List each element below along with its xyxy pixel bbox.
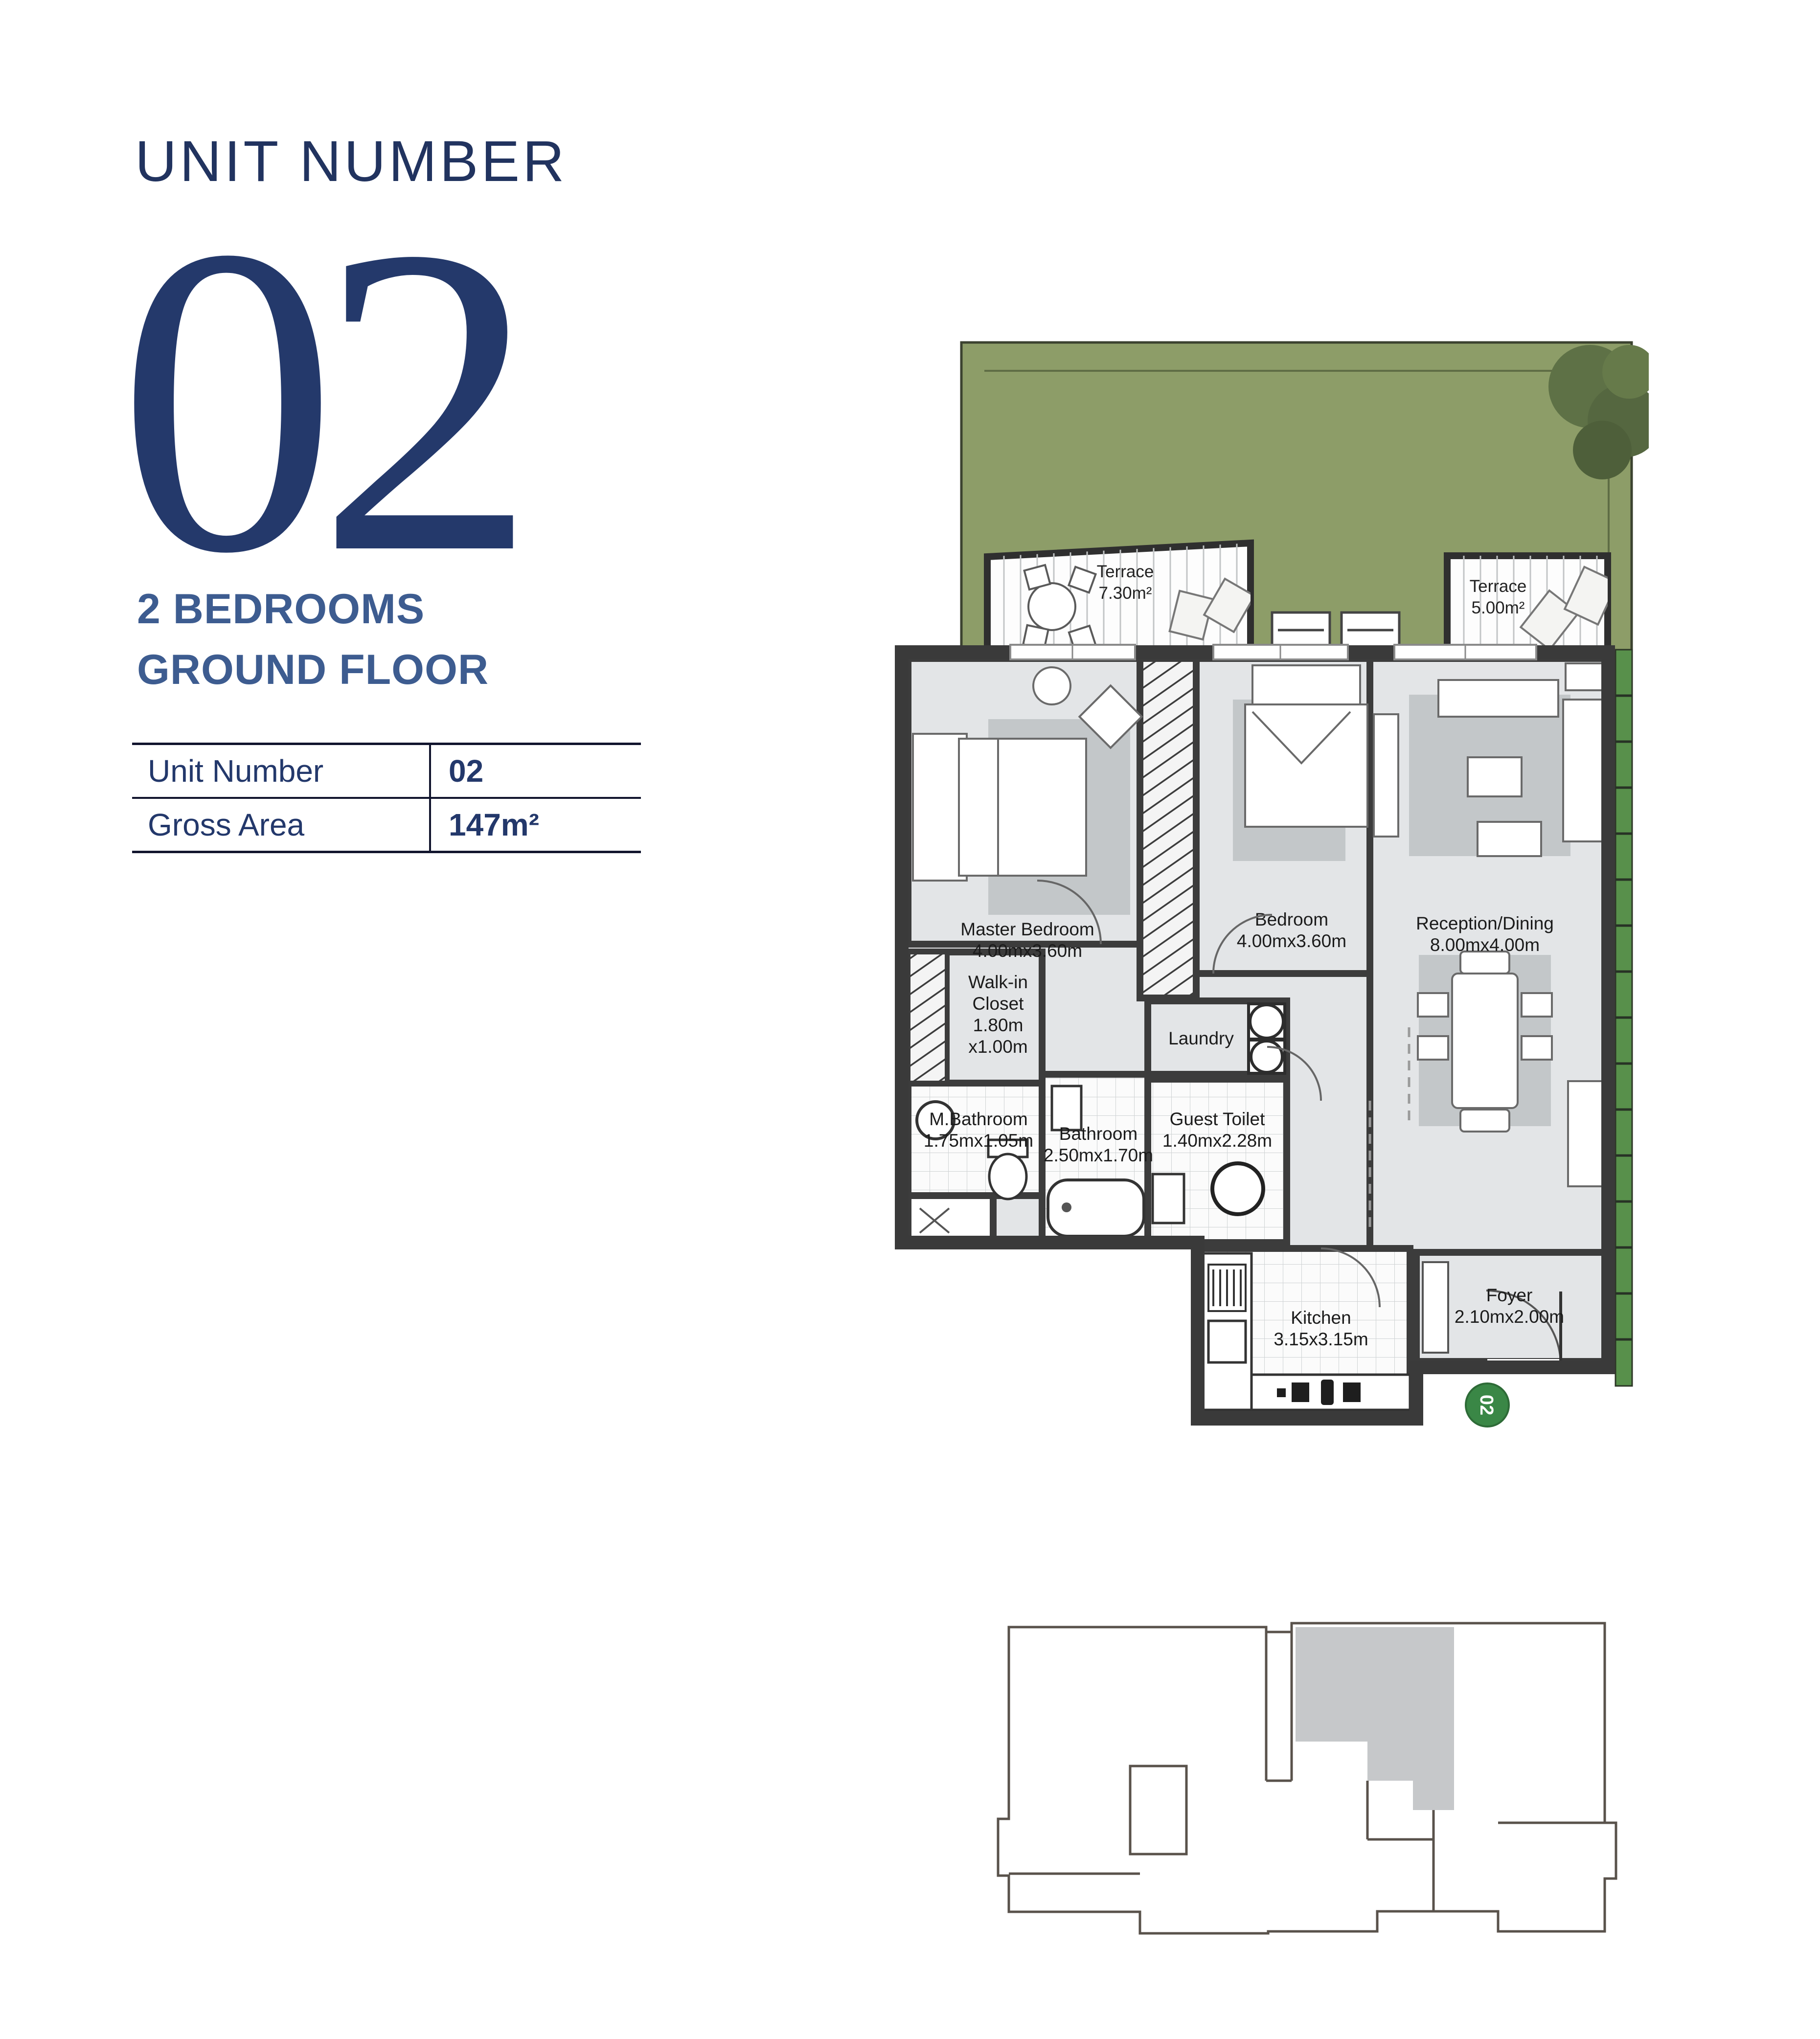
terrace-left-area: 7.30m² bbox=[1099, 584, 1152, 603]
master-bedroom-dims: 4.00mx3.60m bbox=[973, 941, 1082, 961]
terrace-right-area: 5.00m² bbox=[1472, 598, 1525, 617]
chair bbox=[1460, 1110, 1509, 1132]
terrace-left: Terrace 7.30m² bbox=[987, 538, 1254, 651]
cooker-icon bbox=[1208, 1265, 1246, 1311]
master-bedroom-label: Master Bedroom bbox=[960, 919, 1094, 939]
shaft-room bbox=[908, 1196, 993, 1243]
floor-subtitle: GROUND FLOOR bbox=[137, 646, 489, 694]
unit-info-table: Unit Number 02 Gross Area 147m² bbox=[132, 743, 641, 853]
kitchen-label: Kitchen bbox=[1291, 1308, 1351, 1328]
terrace-right-label: Terrace bbox=[1470, 577, 1527, 596]
unit-number-large: 02 bbox=[117, 180, 517, 620]
reception-dims: 8.00mx4.00m bbox=[1430, 935, 1540, 955]
foyer-dims: 2.10mx2.00m bbox=[1455, 1307, 1564, 1327]
svg-text:Walk-in: Walk-in bbox=[968, 972, 1028, 992]
laundry-label: Laundry bbox=[1168, 1028, 1234, 1048]
table-row-gross-area: Gross Area 147m² bbox=[132, 797, 641, 851]
entry-badge: 02 bbox=[1466, 1383, 1509, 1427]
floor-plan: Terrace 7.30m² Terrace 5.00m² bbox=[876, 323, 1649, 1443]
chair bbox=[1522, 993, 1552, 1017]
sectional-sofa bbox=[1563, 700, 1602, 841]
foyer-label: Foyer bbox=[1486, 1285, 1533, 1305]
chair bbox=[1418, 1036, 1448, 1060]
terrace-right: Terrace 5.00m² bbox=[1447, 556, 1617, 651]
chair bbox=[1418, 993, 1448, 1017]
side-table bbox=[1566, 663, 1607, 690]
svg-text:Closet: Closet bbox=[973, 994, 1024, 1014]
vanity-icon bbox=[1153, 1174, 1184, 1223]
bathroom-label: Bathroom bbox=[1059, 1124, 1137, 1144]
guest-toilet-label: Guest Toilet bbox=[1170, 1109, 1265, 1129]
bed bbox=[913, 734, 1086, 881]
table-label: Gross Area bbox=[132, 807, 429, 843]
terrace-left-label: Terrace bbox=[1097, 562, 1154, 581]
bathroom-dims: 2.50mx1.70m bbox=[1044, 1145, 1153, 1165]
bed bbox=[1245, 665, 1367, 827]
table-value: 147m² bbox=[431, 807, 641, 843]
ottoman bbox=[1033, 667, 1070, 704]
key-plan bbox=[993, 1605, 1619, 1937]
m-bathroom-dims: 1.75mx1.05m bbox=[924, 1131, 1033, 1151]
kitchen-dims: 3.15x3.15m bbox=[1274, 1329, 1368, 1349]
closet-hatch-strip bbox=[1140, 658, 1196, 998]
table-label: Unit Number bbox=[132, 753, 429, 789]
bathtub-icon bbox=[1048, 1180, 1144, 1236]
foyer-closet bbox=[1423, 1262, 1448, 1353]
fridge-icon bbox=[1208, 1321, 1246, 1362]
svg-text:x1.00m: x1.00m bbox=[968, 1037, 1027, 1057]
bedroom-dims: 4.00mx3.60m bbox=[1237, 931, 1346, 951]
dining-table bbox=[1452, 974, 1518, 1108]
windows bbox=[1010, 645, 1536, 659]
svg-text:1.80m: 1.80m bbox=[973, 1015, 1024, 1035]
guest-toilet-dims: 1.40mx2.28m bbox=[1162, 1131, 1272, 1151]
chair bbox=[1522, 1036, 1552, 1060]
hedge-strip bbox=[1615, 650, 1632, 1386]
coffee-table bbox=[1468, 757, 1522, 796]
tv-console bbox=[1374, 714, 1398, 837]
m-bathroom-label: M.Bathroom bbox=[929, 1109, 1028, 1129]
walkin-wardrobe bbox=[908, 952, 947, 1083]
table-value: 02 bbox=[431, 753, 641, 789]
entry-badge-number: 02 bbox=[1476, 1395, 1497, 1415]
bedrooms-subtitle: 2 BEDROOMS bbox=[137, 585, 425, 634]
console bbox=[1568, 1081, 1602, 1186]
armchair bbox=[1478, 822, 1541, 856]
sofa bbox=[1438, 680, 1558, 717]
key-plan-unit-highlight bbox=[1296, 1627, 1454, 1810]
reception-label: Reception/Dining bbox=[1416, 913, 1554, 933]
washing-machine-icon bbox=[1249, 1004, 1285, 1073]
page-background: UNIT NUMBER 02 2 BEDROOMS GROUND FLOOR U… bbox=[0, 0, 1820, 2039]
table-row-unit-number: Unit Number 02 bbox=[132, 745, 641, 797]
toilet-icon bbox=[1212, 1163, 1263, 1214]
bedroom-label: Bedroom bbox=[1255, 909, 1328, 929]
